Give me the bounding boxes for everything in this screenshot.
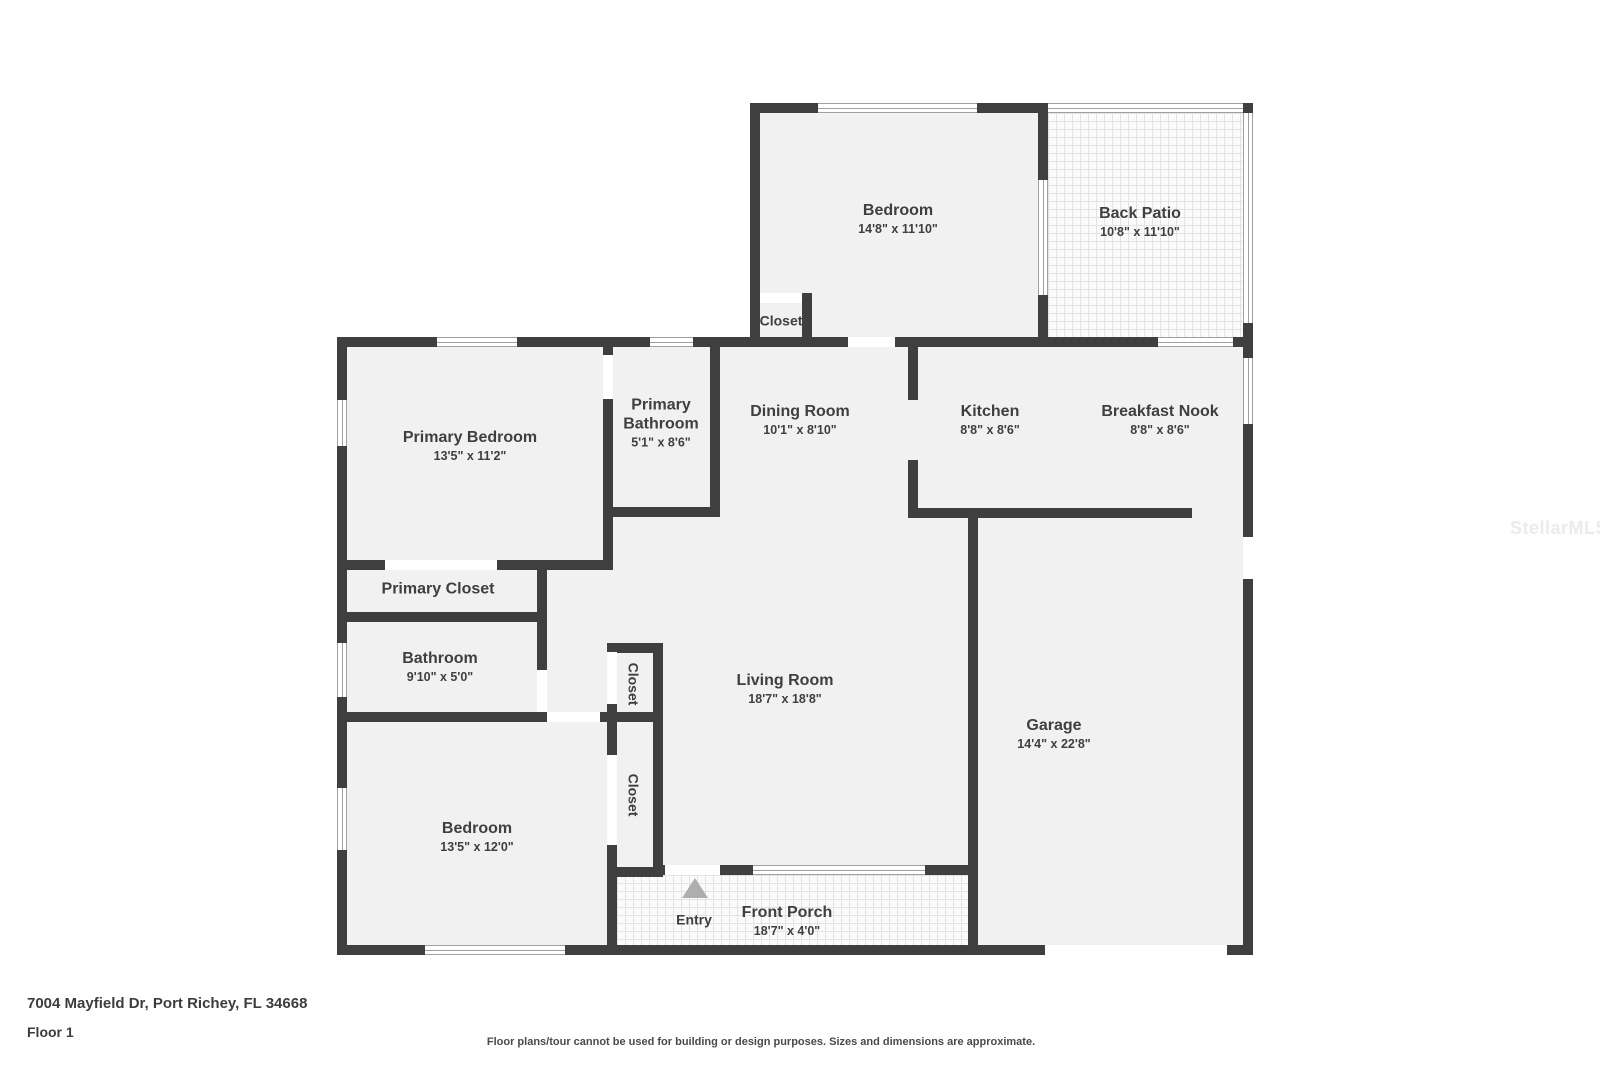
wall [1243,347,1253,955]
wall [908,337,918,400]
room-label-bathroom: Bathroom 9'10" x 5'0" [402,650,478,684]
room-name: Living Room [737,672,834,691]
room-dims: 10'8" x 11'10" [1100,225,1180,239]
room-label-bedroom-lower: Bedroom 13'5" x 12'0" [440,820,513,854]
wall [750,103,760,347]
floor-label: Floor 1 [27,1024,74,1040]
room-dims: 14'4" x 22'8" [1017,737,1090,751]
door-opening [603,355,613,399]
patio-slider-window [1038,180,1048,295]
room-label-primary-bathroom: Primary Bathroom 5'1" x 8'6" [605,397,717,450]
room-dims: 8'8" x 8'6" [1130,423,1190,437]
door-opening [385,560,497,570]
room-name: Entry [676,912,712,929]
room-label-entry: Entry [676,912,712,929]
room-label-bedroom-top: Bedroom 14'8" x 11'10" [858,202,938,236]
room-name: Bathroom [402,650,478,669]
door-opening [1243,537,1253,579]
floor-plan-canvas: Bedroom 14'8" x 11'10" Back Patio 10'8" … [0,0,1600,1066]
window [337,788,347,850]
wall [908,508,1192,518]
window [1158,337,1233,347]
door-opening [547,712,600,722]
room-name: Primary Closet [382,581,495,600]
disclaimer-text: Floor plans/tour cannot be used for buil… [487,1036,1035,1048]
window [425,945,565,955]
garage-door-opening [1045,945,1227,955]
door-opening [760,293,802,303]
door-opening [607,652,617,704]
property-address: 7004 Mayfield Dr, Port Richey, FL 34668 [27,995,307,1012]
room-name: Closet [625,774,642,817]
wall [337,612,547,622]
door-opening [607,755,617,845]
room-name: Garage [1026,717,1081,736]
entry-arrow-icon [682,878,708,898]
room-dims: 9'10" x 5'0" [407,670,473,684]
window [753,865,925,875]
wall [653,643,663,877]
room-dims: 13'5" x 11'2" [434,449,507,463]
room-label-primary-closet: Primary Closet [382,581,495,600]
room-label-front-porch: Front Porch 18'7" x 4'0" [742,904,833,938]
room-dims: 5'1" x 8'6" [631,435,691,449]
front-door-opening [665,865,720,875]
room-label-living-room: Living Room 18'7" x 18'8" [737,672,834,706]
room-name: Bedroom [863,202,933,221]
room-dims: 18'7" x 4'0" [754,924,820,938]
room-dims: 18'7" x 18'8" [748,692,821,706]
stellar-mls-watermark: StellarMLS [1510,518,1600,539]
window [337,400,347,446]
window [1243,358,1253,424]
window [1048,103,1243,113]
room-name: Closet [760,313,803,330]
wall [1038,113,1048,180]
door-opening [848,337,895,347]
room-dims: 10'1" x 8'10" [763,423,836,437]
room-name: Dining Room [750,403,850,422]
room-label-closet-hall-lower: Closet [625,774,642,817]
room-label-breakfast-nook: Breakfast Nook 8'8" x 8'6" [1101,403,1218,437]
door-opening [537,670,547,712]
room-label-dining-room: Dining Room 10'1" x 8'10" [750,403,850,437]
room-label-closet-top: Closet [760,313,803,330]
room-dims: 14'8" x 11'10" [858,222,938,236]
room-label-garage: Garage 14'4" x 22'8" [1017,717,1090,751]
room-name: Kitchen [961,403,1020,422]
room-label-back-patio: Back Patio 10'8" x 11'10" [1099,205,1181,239]
room-dims: 8'8" x 8'6" [960,423,1020,437]
room-name: Primary Bathroom [605,397,717,435]
room-label-kitchen: Kitchen 8'8" x 8'6" [960,403,1020,437]
window [650,337,693,347]
room-name: Front Porch [742,904,833,923]
wall [968,518,978,955]
room-name: Breakfast Nook [1101,403,1218,422]
window [437,337,517,347]
window [1243,113,1253,323]
room-name: Bedroom [442,820,512,839]
window [337,643,347,697]
window [818,103,977,113]
wall [613,507,720,517]
room-label-primary-bedroom: Primary Bedroom 13'5" x 11'2" [403,429,537,463]
room-label-closet-hall-upper: Closet [625,663,642,706]
room-name: Back Patio [1099,205,1181,224]
room-dims: 13'5" x 12'0" [440,840,513,854]
room-name: Primary Bedroom [403,429,537,448]
room-name: Closet [625,663,642,706]
